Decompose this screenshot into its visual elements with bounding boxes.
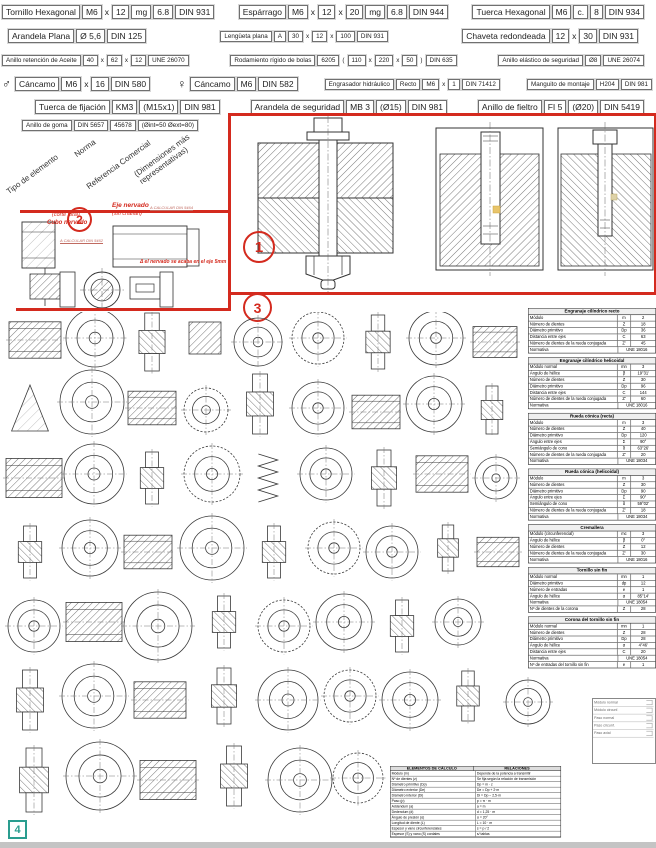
gear-table-value: 63 <box>631 334 655 340</box>
part-drawing-wheel <box>59 661 129 731</box>
calc-element: Addendum (a) <box>391 804 476 809</box>
part-drawing-wheel <box>231 315 285 369</box>
part-drawing-spring <box>258 454 277 502</box>
gear-table-symbol: Dp <box>618 433 631 439</box>
gear-table-symbol: Σ <box>618 495 631 501</box>
gear-table-label: Número de dientes <box>529 482 618 488</box>
gear-table-value: 28 <box>631 606 655 612</box>
part-drawing-wheel <box>5 597 63 655</box>
bolt-assembly-red-box <box>228 113 656 295</box>
calc-relation: a = m <box>476 804 561 809</box>
gear-table-symbol: α <box>618 643 631 649</box>
gear-table-label: Ángulo de hélice <box>529 643 618 649</box>
spec-box: Arandela Plana <box>8 29 74 43</box>
part-drawing-vshaft <box>139 312 165 374</box>
gear-table: Corona del tornillo sin finMódulo normal… <box>528 616 656 668</box>
gear-table-value: 40 <box>631 426 655 432</box>
spec-group: Arandela PlanaØ 5,6DIN 125 <box>8 29 146 43</box>
spec-separator: x <box>83 79 89 89</box>
spec-group: Anillo de fieltroFI 5(Ø20)DIN 5419 <box>478 100 644 114</box>
gear-table-value: 3 <box>631 531 655 537</box>
part-drawing-wheel <box>63 739 137 813</box>
gear-table-label: Diámetro primitivo <box>529 581 618 587</box>
spec-box: 45678 <box>110 120 136 131</box>
gear-table-value: 28 <box>631 630 655 636</box>
gear-table-value: 0° <box>631 538 655 544</box>
gear-table-symbol: m <box>618 476 631 482</box>
gear-table-value: 144 <box>631 390 655 396</box>
spec-box: Cáncamo <box>15 77 59 91</box>
gear-table: Tornillo sin finMódulo normalmn1Diámetro… <box>528 567 656 612</box>
gear-table-symbol: Z' <box>618 396 631 402</box>
gear-table-symbol: C <box>618 390 631 396</box>
gender-symbol-icon: ♂ <box>2 77 11 91</box>
gear-table-value: 20 <box>631 452 655 458</box>
part-drawing-wheel <box>57 367 127 437</box>
gear-table-label: Módulo <box>529 420 618 426</box>
gear-table-row: NormativaUNE 18034 <box>529 514 656 520</box>
spec-box: DIN 125 <box>107 29 146 43</box>
gear-table-label: Distancia entre ejes <box>529 390 618 396</box>
legend-step-icon <box>646 731 652 736</box>
gear-table-symbol: Z' <box>618 452 631 458</box>
part-drawing-wheel <box>379 669 441 731</box>
gear-table-symbol: Z' <box>618 508 631 514</box>
gear-table-value: 28 <box>631 636 655 642</box>
gear-table-symbol: Z' <box>618 551 631 557</box>
gear-table-symbol: mn <box>618 574 631 580</box>
calc-relation: Di = Dp − 2,5·m <box>476 793 561 798</box>
part-drawing-gears <box>131 682 189 718</box>
spec-box: (Øint=50 Øext=80) <box>138 120 198 131</box>
calc-element: Nº de dientes (z) <box>391 776 476 781</box>
gear-table-label: Distancia entre ejes <box>529 649 618 655</box>
spec-box: 12 <box>131 55 146 66</box>
gear-table-symbol: Z <box>618 377 631 383</box>
spec-box: Chaveta redondeada <box>462 29 549 43</box>
spec-box: 8 <box>590 5 603 19</box>
part-drawing-block <box>189 322 221 354</box>
spec-group: EspárragoM6x12x20mg6.8DIN 944 <box>239 5 448 19</box>
part-drawing-gears <box>3 458 65 497</box>
gear-table-value: 1 <box>631 587 655 593</box>
calc-relation: p = π · m <box>476 798 561 803</box>
spec-box: Ø8 <box>585 55 601 66</box>
gear-table-value: 63°26' <box>631 446 655 452</box>
spec-box: mg <box>365 5 385 19</box>
calc-element: Diámetro primitivo (Dp) <box>391 782 476 787</box>
gear-table-label: Módulo normal <box>529 364 618 370</box>
gear-table-label: Normativa <box>529 403 619 409</box>
document-page: Tornillo HexagonalM6x12mg6.8DIN 931Espár… <box>0 0 656 848</box>
part-drawing-vshaft <box>140 449 163 507</box>
circled-number-1: 1 <box>243 231 275 263</box>
spec-separator: x <box>368 57 373 64</box>
part-drawing-gearw <box>181 443 243 505</box>
gear-table-label: Diámetro primitivo <box>529 328 618 334</box>
calc-relation: Depende de la potencia a transmitir <box>476 771 561 776</box>
gear-table-value: 12 <box>631 544 655 550</box>
spec-box: Lengüeta plana <box>220 31 271 42</box>
gear-table-label: Módulo normal <box>529 574 618 580</box>
part-drawing-cone <box>12 385 49 431</box>
gear-table-symbol: Z <box>618 482 631 488</box>
spec-box: M6 <box>61 77 81 91</box>
part-drawing-gears <box>470 327 520 358</box>
spec-separator: x <box>441 81 446 88</box>
legend-step-icon <box>646 708 652 713</box>
part-drawing-wheel <box>363 523 421 581</box>
gear-table-label: Diámetro primitivo <box>529 636 618 642</box>
spec-box: Anillo de goma <box>22 120 72 131</box>
spec-box: DIN 635 <box>426 55 457 66</box>
spec-box: 110 <box>348 55 366 66</box>
part-drawing-wheel <box>432 596 484 648</box>
gear-table-symbol: β <box>618 538 631 544</box>
spec-box: 12 <box>112 5 129 19</box>
spec-group: Anillo elástico de seguridadØ8UNE 26074 <box>498 55 644 66</box>
spec-box: Anillo retención de Aceite <box>2 55 81 66</box>
gear-table-label: Número de dientes de la rueda conjugada <box>529 396 618 402</box>
spec-row: Tornillo HexagonalM6x12mg6.8DIN 931Espár… <box>0 5 656 19</box>
spec-separator: x <box>124 57 129 64</box>
spec-box: (Ø15) <box>376 100 406 114</box>
gear-table-label: Ángulo de hélice <box>529 538 618 544</box>
calc-relation: Dp = m · z <box>476 782 561 787</box>
calc-relation: s = p / 2 <box>476 826 561 831</box>
calc-element: Módulo (m) <box>391 771 476 776</box>
gear-table-label: Número de entradas <box>529 587 618 593</box>
spec-box: 62 <box>107 55 122 66</box>
gear-table-value: 90° <box>631 495 655 501</box>
spec-box: 30 <box>579 29 596 43</box>
part-drawing-vshaft <box>481 383 503 437</box>
spec-box: DIN 931 <box>175 5 214 19</box>
spec-separator: x <box>329 33 334 40</box>
gear-table-symbol: C <box>618 649 631 655</box>
calc-element: Ángulo de presión (α) <box>391 815 476 820</box>
gear-table-label: Número de dientes <box>529 426 618 432</box>
gear-table-value: 19°31' <box>631 371 655 377</box>
calc-relation: s/ tablas <box>476 831 561 836</box>
part-drawing-gears <box>349 395 403 429</box>
spec-separator: x <box>100 57 105 64</box>
spec-box: Tornillo Hexagonal <box>2 5 80 19</box>
gear-table-symbol: δ <box>618 446 631 452</box>
spec-box: Anillo elástico de seguridad <box>498 55 583 66</box>
spec-row: ♂CáncamoM6x16DIN 580♀CáncamoM6DIN 582Eng… <box>0 77 656 91</box>
spec-box: Espárrago <box>239 5 286 19</box>
gear-table-label: Ángulo de hélice <box>529 371 618 377</box>
spec-box: DIN 931 <box>357 31 388 42</box>
spec-separator: x <box>337 7 343 17</box>
bolt-assembly-drawing <box>231 116 654 292</box>
legend-step-icon <box>646 716 652 721</box>
spec-box: Ø 5,6 <box>76 29 105 43</box>
spec-group: ♂CáncamoM6x16DIN 580 <box>2 77 150 91</box>
gear-table-label: Número de dientes <box>529 321 618 327</box>
legend-label: Paso axial <box>594 731 611 735</box>
spec-group: Rodamiento rígido de bolas6205(110x220x5… <box>230 55 456 66</box>
part-drawing-vshaft <box>262 523 285 581</box>
spec-box: FI 5 <box>544 100 567 114</box>
gear-table-value: 4°46' <box>631 643 655 649</box>
handwritten-note-bottom: Δ el nervado se acaba en el eje 5mm <box>140 260 226 265</box>
spec-row: Arandela PlanaØ 5,6DIN 125Lengüeta plana… <box>0 29 656 43</box>
page-bottom-strip <box>0 842 656 848</box>
handwritten-note-eje: A CALCULAR DIN 5464 <box>150 205 193 211</box>
spec-box: 16 <box>91 77 108 91</box>
gear-table-value: 120 <box>631 433 655 439</box>
gear-table: CremalleraMódulo (circunferencial)mc3Áng… <box>528 524 656 563</box>
gear-table-value: 1 <box>631 662 655 668</box>
legend-label: Paso normal <box>594 716 614 720</box>
gear-table: Rueda cónica (recta)Módulom3Número de di… <box>528 413 656 465</box>
gear-table-symbol: δ <box>618 501 631 507</box>
part-drawing-wheel <box>472 454 520 502</box>
spec-box: mg <box>131 5 151 19</box>
gear-table-label: Normativa <box>529 514 619 520</box>
gear-table-row: NormativaUNE 18034 <box>529 458 656 464</box>
gear-table-value: UNE 18054 <box>618 656 655 662</box>
gear-table-label: Módulo <box>529 476 618 482</box>
part-drawing-vshaft <box>457 668 480 724</box>
gear-table: Rueda cónica (helicoidal)Módulom3Número … <box>528 469 656 521</box>
calc-table-title: ELEMENTOS DE CÁLCULO <box>391 767 474 771</box>
spec-box: 12 <box>318 5 335 19</box>
gear-table-symbol: Σ <box>618 439 631 445</box>
gear-table-label: Diámetro primitivo <box>529 488 618 494</box>
spec-group: Tuerca de fijaciónKM3(M15x1)DIN 981 <box>35 100 220 114</box>
spec-box: DIN 580 <box>111 77 150 91</box>
column-label-tipo: Tipo de elemento <box>5 153 60 196</box>
spec-group: Manguito de montajeH204DIN 981 <box>527 79 652 90</box>
legend-row: Paso normal <box>593 714 654 722</box>
part-drawing-gears <box>413 456 471 492</box>
spec-box: Cáncamo <box>190 77 234 91</box>
spec-box: 100 <box>336 31 355 42</box>
spec-box: M6 <box>288 5 308 19</box>
part-drawing-gearw <box>255 597 313 655</box>
gear-table-symbol: Z' <box>618 341 631 347</box>
gear-table-label: Normativa <box>529 656 619 662</box>
part-drawing-wheel <box>61 441 127 507</box>
spec-separator: x <box>571 31 577 41</box>
gear-table-value: UNE 18034 <box>618 458 655 464</box>
gear-table-value: UNE 18016 <box>618 347 655 353</box>
legend-step-icon <box>646 700 652 705</box>
gear-table-label: Nº de dientes de la corona <box>529 606 618 612</box>
spec-box: DIN 582 <box>258 77 297 91</box>
spec-group: Engrasador hidráulicoRectoM6x1DIN 71412 <box>325 79 500 90</box>
spec-box: A <box>274 31 286 42</box>
gear-table-value: 30 <box>631 551 655 557</box>
gear-table-value: 2 <box>631 315 655 321</box>
gear-table-value: 45 <box>631 341 655 347</box>
gender-symbol-icon: ♀ <box>177 77 186 91</box>
gear-table-value: 96 <box>631 384 655 390</box>
gear-table-symbol: Z <box>618 426 631 432</box>
gear-table-row: NormativaUNE 18016 <box>529 403 656 409</box>
part-drawing-wheel <box>313 591 375 653</box>
part-drawing-wheel <box>255 667 321 733</box>
spec-box: 40 <box>83 55 98 66</box>
part-drawing-gears <box>125 391 179 425</box>
gear-table-value: 90 <box>631 488 655 494</box>
gear-table-label: Normativa <box>529 600 619 606</box>
spec-group: Anillo retención de Aceite40x62x12UNE 26… <box>2 55 189 66</box>
calc-relation: d = 1,25 · m <box>476 809 561 814</box>
part-drawing-wheel <box>265 745 335 815</box>
spec-box: 6.8 <box>153 5 173 19</box>
gear-table-label: Nº de entradas del tornillo sin fin <box>529 662 618 668</box>
spec-box: M6 <box>82 5 102 19</box>
gear-table-symbol: Dp <box>618 384 631 390</box>
spec-separator: x <box>310 7 316 17</box>
part-drawing-vshaft <box>247 371 274 437</box>
spec-box: DIN 5657 <box>74 120 109 131</box>
gear-table-symbol: Z <box>618 544 631 550</box>
spec-separator: x <box>104 7 110 17</box>
spec-box: M6 <box>237 77 257 91</box>
spec-box: DIN 931 <box>599 29 638 43</box>
spec-group: Tornillo HexagonalM6x12mg6.8DIN 931 <box>2 5 214 19</box>
spec-box: DIN 981 <box>408 100 447 114</box>
part-drawing-gears <box>63 602 125 641</box>
gear-table-label: Normativa <box>529 557 619 563</box>
part-drawing-gearw <box>305 519 363 577</box>
calc-relation: Se fija según la relación de transmisión <box>476 776 561 781</box>
spec-separator: ( <box>341 57 345 64</box>
gear-table-label: Número de dientes de la rueda conjugada <box>529 341 618 347</box>
gear-table-label: Ángulo entre ejes <box>529 495 618 501</box>
gear-table-value: UNE 18016 <box>618 403 655 409</box>
gear-table-label: Módulo normal <box>529 624 618 630</box>
gear-table-symbol: mn <box>618 364 631 370</box>
spec-box: M6 <box>422 79 439 90</box>
legend-label: Módulo normal <box>594 700 618 704</box>
spec-box: (M15x1) <box>139 100 178 114</box>
gear-table-value: 60 <box>631 396 655 402</box>
spec-box: 6205 <box>317 55 339 66</box>
handwritten-note-cubo: A CALCULAR DIN 5462 <box>60 238 103 244</box>
left-box-right-line <box>228 289 231 311</box>
part-drawing-vshaft <box>390 597 413 655</box>
calc-element: Longitud de diente (L) <box>391 820 476 825</box>
gear-table-symbol: e <box>618 587 631 593</box>
part-drawing-gears <box>137 760 199 799</box>
gear-calculation-table: ELEMENTOS DE CÁLCULORELACIONESMódulo (m)… <box>390 766 560 848</box>
gear-table-symbol: C <box>618 334 631 340</box>
gear-table-value: 12 <box>631 581 655 587</box>
spec-box: 12 <box>312 31 327 42</box>
part-drawing-gearw <box>181 385 231 435</box>
gear-table-label: Número de dientes de la rueda conjugada <box>529 452 618 458</box>
gear-table-symbol: dp <box>618 581 631 587</box>
spec-box: UNE 26074 <box>603 55 644 66</box>
spec-box: Arandela de seguridad <box>251 100 345 114</box>
calc-element: Paso (p) <box>391 798 476 803</box>
column-label-norma: Norma <box>73 138 98 159</box>
calc-table-row: Espesor (S) y vano (S) cordaless/ tablas <box>391 831 561 837</box>
gear-table-symbol: m <box>618 315 631 321</box>
module-legend-box: Módulo normalMódulo circunf.Paso normalP… <box>592 698 656 764</box>
part-drawing-vshaft <box>212 593 235 651</box>
gear-table-label: Módulo (circunferencial) <box>529 531 618 537</box>
part-drawing-wheel <box>289 379 347 437</box>
page-number-badge: 4 <box>8 820 27 839</box>
gear-table-value: 18 <box>631 508 655 514</box>
gear-table-value: UNE 18034 <box>618 514 655 520</box>
part-drawing-gearw <box>321 667 379 725</box>
calc-relation: De = Dp + 2·m <box>476 787 561 792</box>
gear-table-label: Normativa <box>529 347 619 353</box>
spec-separator: x <box>305 33 310 40</box>
gear-table: Engranaje cilíndrico helicoidalMódulo no… <box>528 357 656 409</box>
spec-box: KM3 <box>112 100 137 114</box>
gear-table-label: Número de dientes de la rueda conjugada <box>529 551 618 557</box>
spec-box: DIN 981 <box>621 79 652 90</box>
gear-table-value: 20 <box>631 649 655 655</box>
calc-element: Diámetro exterior (De) <box>391 787 476 792</box>
part-drawing-wheel <box>63 312 127 370</box>
spec-group: Tuerca HexagonalM6c.8DIN 934 <box>472 5 644 19</box>
spec-box: Rodamiento rígido de bolas <box>230 55 315 66</box>
gear-table-value: 3 <box>631 420 655 426</box>
gear-table-value: 90° <box>631 439 655 445</box>
part-drawing-gears <box>121 535 175 569</box>
legend-row: Módulo normal <box>593 699 654 707</box>
spec-box: Manguito de montaje <box>527 79 594 90</box>
calc-relation: L = 10 · m <box>476 820 561 825</box>
spec-box: 220 <box>375 55 394 66</box>
legend-row: Paso axial <box>593 730 654 738</box>
gear-table-value: 18 <box>631 321 655 327</box>
gear-table-row: Nº de dientes de la coronaZ28 <box>529 606 656 612</box>
part-drawing-vshaft <box>438 522 459 574</box>
spec-box: Tuerca Hexagonal <box>472 5 549 19</box>
gear-table-label: Número de dientes <box>529 630 618 636</box>
spec-box: 1 <box>448 79 460 90</box>
gear-table-symbol: α <box>618 593 631 599</box>
spec-group: Lengüeta planaA30x12x100DIN 931 <box>220 31 388 42</box>
part-drawing-vshaft <box>20 745 49 815</box>
part-drawing-vshaft <box>366 312 390 372</box>
calc-element: Dedendum (d) <box>391 809 476 814</box>
spec-box: 30 <box>288 31 303 42</box>
part-drawing-vshaft <box>221 743 248 809</box>
spec-box: (Ø20) <box>568 100 598 114</box>
part-drawing-vshaft <box>18 523 41 581</box>
spec-box: DIN 5419 <box>600 100 644 114</box>
legend-row: Módulo circunf. <box>593 707 654 715</box>
gear-table-label: Semiángulo de cono <box>529 446 618 452</box>
part-drawing-gears <box>474 537 522 566</box>
calc-element: Diámetro interior (Di) <box>391 793 476 798</box>
calc-element: Espesor y vano circunferenciales <box>391 826 476 831</box>
calc-element: Espesor (S) y vano (S) cordales <box>391 831 476 836</box>
legend-step-icon <box>646 723 652 728</box>
gear-table-label: Ángulo de hélice <box>529 593 618 599</box>
gear-table-label: Distancia entre ejes <box>529 334 618 340</box>
spec-separator: x <box>395 57 400 64</box>
gear-table-label: Ángulo entre ejes <box>529 439 618 445</box>
spec-box: 20 <box>346 5 363 19</box>
gear-table-label: Normativa <box>529 458 619 464</box>
spec-group: Chaveta redondeada12x30DIN 931 <box>462 29 638 43</box>
gear-table-value: 30 <box>631 482 655 488</box>
spec-separator: ) <box>419 57 423 64</box>
